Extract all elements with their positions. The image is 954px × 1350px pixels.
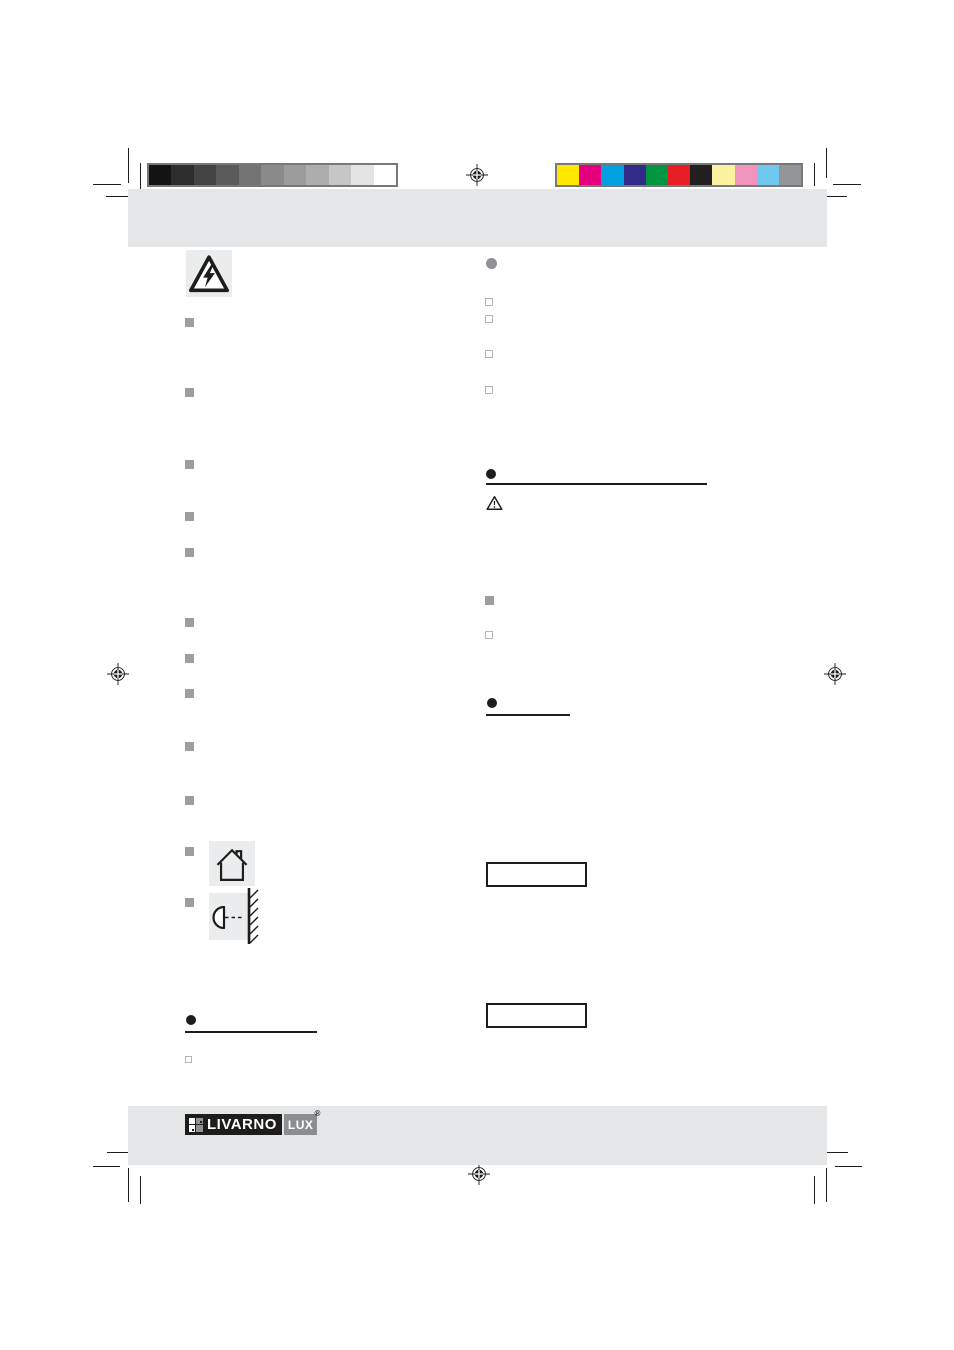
bullet-square	[185, 654, 194, 663]
registered-trademark-icon: ®	[314, 1109, 320, 1118]
bullet-square	[485, 596, 494, 605]
crop-mark	[140, 1176, 141, 1204]
indoor-use-tile	[209, 841, 255, 886]
calibration-swatch	[579, 165, 601, 185]
calibration-swatch	[757, 165, 779, 185]
header-band	[128, 189, 827, 247]
crop-mark	[835, 1166, 862, 1167]
crop-mark	[833, 184, 861, 185]
bullet-square	[185, 388, 194, 397]
livarno-lux-logo: LIVARNO LUX ®	[185, 1114, 317, 1135]
calibration-swatch	[557, 165, 579, 185]
value-box	[486, 1003, 587, 1028]
logo-sub-text: LUX	[288, 1119, 314, 1131]
calibration-swatch	[624, 165, 646, 185]
color-calibration-bar	[555, 163, 803, 187]
crop-mark	[128, 148, 129, 183]
bullet-square	[185, 689, 194, 698]
calibration-swatch	[668, 165, 690, 185]
registration-mark-icon	[466, 164, 488, 186]
bullet-square	[185, 847, 194, 856]
bullet-square	[185, 618, 194, 627]
section-bullet	[486, 469, 496, 479]
wall-lamp-icon	[210, 895, 250, 939]
grayscale-calibration-bar	[147, 163, 398, 187]
calibration-swatch	[194, 165, 216, 185]
crop-mark	[826, 148, 827, 178]
bullet-square-outline	[185, 1056, 192, 1063]
crop-mark	[107, 1152, 129, 1153]
bullet-square-outline	[485, 350, 493, 358]
bullet-square	[185, 898, 194, 907]
registration-mark-icon	[824, 663, 846, 685]
calibration-swatch	[374, 165, 396, 185]
registration-mark-icon	[107, 663, 129, 685]
crop-mark	[93, 184, 121, 185]
logo-black-box: LIVARNO	[185, 1114, 282, 1135]
bullet-square-outline	[485, 315, 493, 323]
bullet-square	[185, 796, 194, 805]
wall-mount-tile	[209, 893, 251, 940]
bullet-square-outline	[485, 298, 493, 306]
crop-mark	[814, 1176, 815, 1204]
crop-mark	[128, 1168, 129, 1202]
calibration-swatch	[601, 165, 623, 185]
house-icon	[211, 843, 253, 884]
warning-triangle-lightning-icon	[188, 254, 230, 294]
bullet-square-outline	[485, 386, 493, 394]
calibration-swatch	[690, 165, 712, 185]
crop-mark	[140, 163, 141, 191]
crop-mark	[826, 1168, 827, 1202]
section-underline	[486, 714, 570, 716]
calibration-swatch	[216, 165, 238, 185]
calibration-swatch	[171, 165, 193, 185]
crop-mark	[826, 1152, 848, 1153]
logo-brand-text: LIVARNO	[207, 1117, 277, 1132]
section-bullet	[186, 1015, 196, 1025]
high-voltage-warning-tile	[186, 250, 232, 297]
section-underline	[185, 1031, 317, 1033]
calibration-swatch	[351, 165, 373, 185]
bullet-square	[185, 548, 194, 557]
bullet-square	[185, 512, 194, 521]
calibration-swatch	[306, 165, 328, 185]
calibration-swatch	[149, 165, 171, 185]
value-box	[486, 862, 587, 887]
bullet-square	[185, 460, 194, 469]
hatched-wall-icon	[246, 888, 259, 946]
bullet-circle-gray	[486, 258, 497, 269]
bullet-square-outline	[485, 631, 493, 639]
calibration-swatch	[779, 165, 801, 185]
section-underline	[486, 483, 707, 485]
calibration-swatch	[239, 165, 261, 185]
bullet-square	[185, 742, 194, 751]
crop-mark	[814, 163, 815, 186]
calibration-swatch	[735, 165, 757, 185]
warning-triangle-icon	[486, 495, 503, 511]
crop-mark	[93, 1166, 120, 1167]
manual-print-page: LIVARNO LUX ®	[0, 0, 954, 1350]
crop-mark	[106, 196, 129, 197]
section-bullet	[487, 698, 497, 708]
calibration-swatch	[284, 165, 306, 185]
registration-mark-icon	[468, 1163, 490, 1185]
calibration-swatch	[646, 165, 668, 185]
livarno-window-icon	[189, 1118, 203, 1132]
bullet-square	[185, 318, 194, 327]
logo-lux-box: LUX ®	[284, 1114, 318, 1135]
calibration-swatch	[261, 165, 283, 185]
calibration-swatch	[329, 165, 351, 185]
calibration-swatch	[712, 165, 734, 185]
